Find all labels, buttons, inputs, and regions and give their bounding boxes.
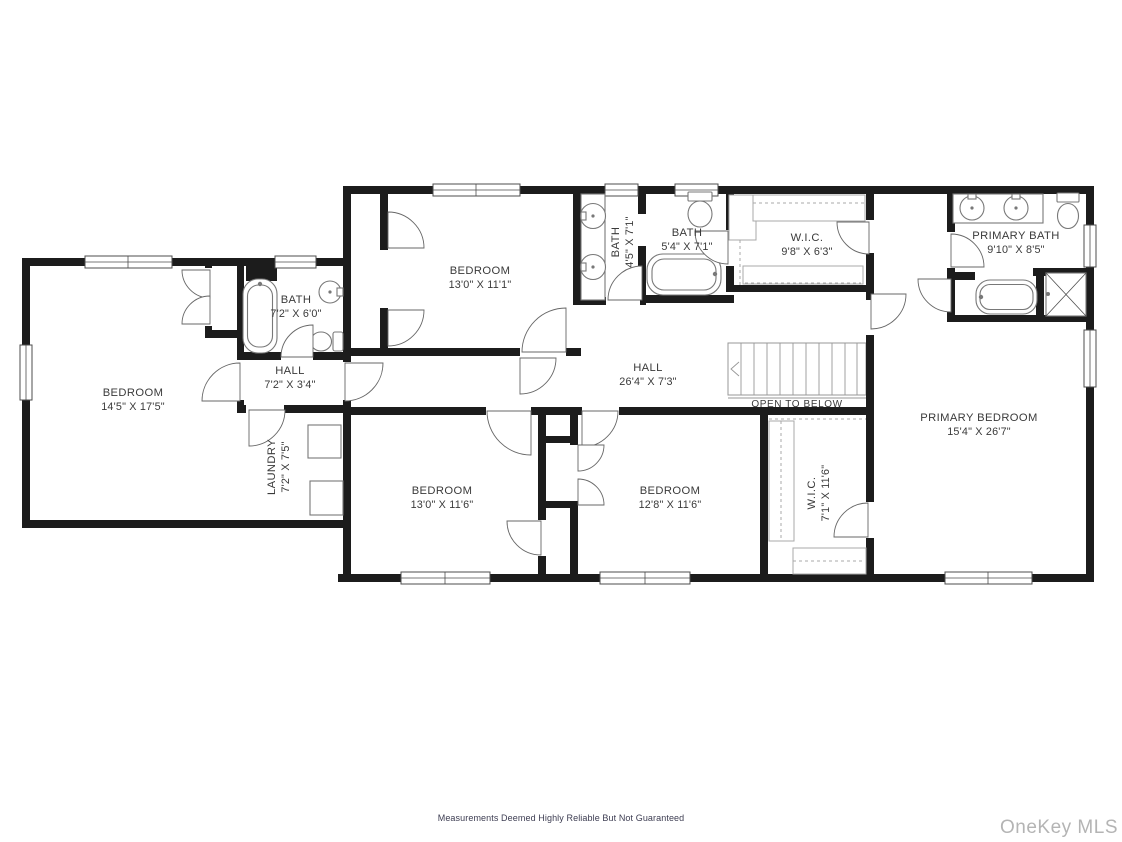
room-label-hall-main: HALL: [633, 362, 663, 374]
room-label-bath-middle: BATH: [610, 227, 622, 258]
window: [600, 572, 690, 584]
door-arc: [608, 266, 642, 300]
toilet-icon: [688, 192, 712, 227]
door-arc: [871, 294, 906, 329]
room-dims-laundry: 7'2" X 7'5": [280, 441, 292, 492]
room-dims-bedroom-left: 14'5" X 17'5": [101, 401, 165, 413]
room-dims-hall-left: 7'2" X 3'4": [264, 379, 315, 391]
onekey-mls-watermark: OneKey MLS: [1000, 817, 1118, 838]
door-arc: [487, 411, 531, 455]
floor-plan-page: OPEN TO BELOW: [0, 0, 1122, 842]
window: [1084, 225, 1096, 267]
room-dims-primary-bedroom: 15'4" X 26'7": [947, 426, 1011, 438]
window: [85, 256, 172, 268]
sink-icon: [319, 281, 343, 303]
door-arc: [388, 212, 424, 248]
room-label-bath-hall: BATH: [672, 227, 703, 239]
door-arc: [388, 310, 424, 346]
room-label-hall-left: HALL: [275, 365, 305, 377]
window: [20, 345, 32, 400]
washer-icon: [308, 425, 341, 458]
room-label-wic-bottom: W.I.C.: [806, 477, 818, 510]
staircase: OPEN TO BELOW: [728, 343, 866, 410]
bathtub-icon: [976, 280, 1037, 314]
room-label-bath-left: BATH: [281, 294, 312, 306]
door-arc: [582, 411, 618, 447]
room-dims-wic-top: 9'8" X 6'3": [781, 246, 832, 258]
dryer-icon: [310, 481, 343, 515]
room-dims-bath-middle: 4'5" X 7'1": [624, 216, 636, 267]
sink-icon: [581, 255, 606, 280]
door-arc: [522, 308, 566, 352]
door-arc: [837, 222, 869, 254]
toilet-icon: [1057, 193, 1079, 229]
walls: [22, 186, 1094, 582]
window: [945, 572, 1032, 584]
bathtub-icon: [647, 254, 721, 295]
door-arc: [520, 358, 556, 394]
room-dims-bedroom-top: 13'0" X 11'1": [449, 279, 512, 291]
window: [433, 184, 520, 196]
door-arc: [182, 270, 210, 298]
room-label-bedroom-left: BEDROOM: [103, 387, 164, 399]
room-label-bedroom-bottom-middle: BEDROOM: [640, 485, 701, 497]
disclaimer-text: Measurements Deemed Highly Reliable But …: [438, 813, 685, 823]
room-label-laundry: LAUNDRY: [266, 439, 278, 495]
door-arc: [507, 521, 541, 555]
room-dims-wic-bottom: 7'1" X 11'6": [820, 465, 832, 522]
chimney-mass: [246, 262, 277, 281]
room-label-wic-top: W.I.C.: [791, 232, 824, 244]
sink-icon: [581, 204, 606, 229]
door-arc: [918, 279, 951, 312]
door-arc: [281, 325, 313, 357]
door-arc: [834, 503, 868, 537]
room-dims-primary-bath: 9'10" X 8'5": [987, 244, 1044, 256]
room-label-primary-bath: PRIMARY BATH: [972, 230, 1059, 242]
window: [605, 184, 638, 196]
room-dims-bedroom-bottom-middle: 12'8" X 11'6": [639, 499, 702, 511]
door-arc: [202, 363, 240, 401]
room-label-bedroom-bottom-left: BEDROOM: [412, 485, 473, 497]
shower-icon: [1046, 273, 1086, 316]
room-label-primary-bedroom: PRIMARY BEDROOM: [920, 412, 1037, 424]
door-arc: [578, 479, 604, 505]
door-arc: [182, 296, 210, 324]
door-arc: [578, 445, 604, 471]
room-dims-bath-hall: 5'4" X 7'1": [661, 241, 712, 253]
window: [1084, 330, 1096, 387]
door-arc: [345, 363, 383, 401]
room-label-bedroom-top: BEDROOM: [450, 265, 511, 277]
room-dims-hall-main: 26'4" X 7'3": [619, 376, 676, 388]
window: [401, 572, 490, 584]
room-dims-bedroom-bottom-left: 13'0" X 11'6": [411, 499, 474, 511]
floor-plan: OPEN TO BELOW: [0, 0, 1122, 842]
toilet-icon: [311, 332, 344, 351]
room-dims-bath-left: 7'2" X 6'0": [270, 308, 321, 320]
window: [275, 256, 316, 268]
